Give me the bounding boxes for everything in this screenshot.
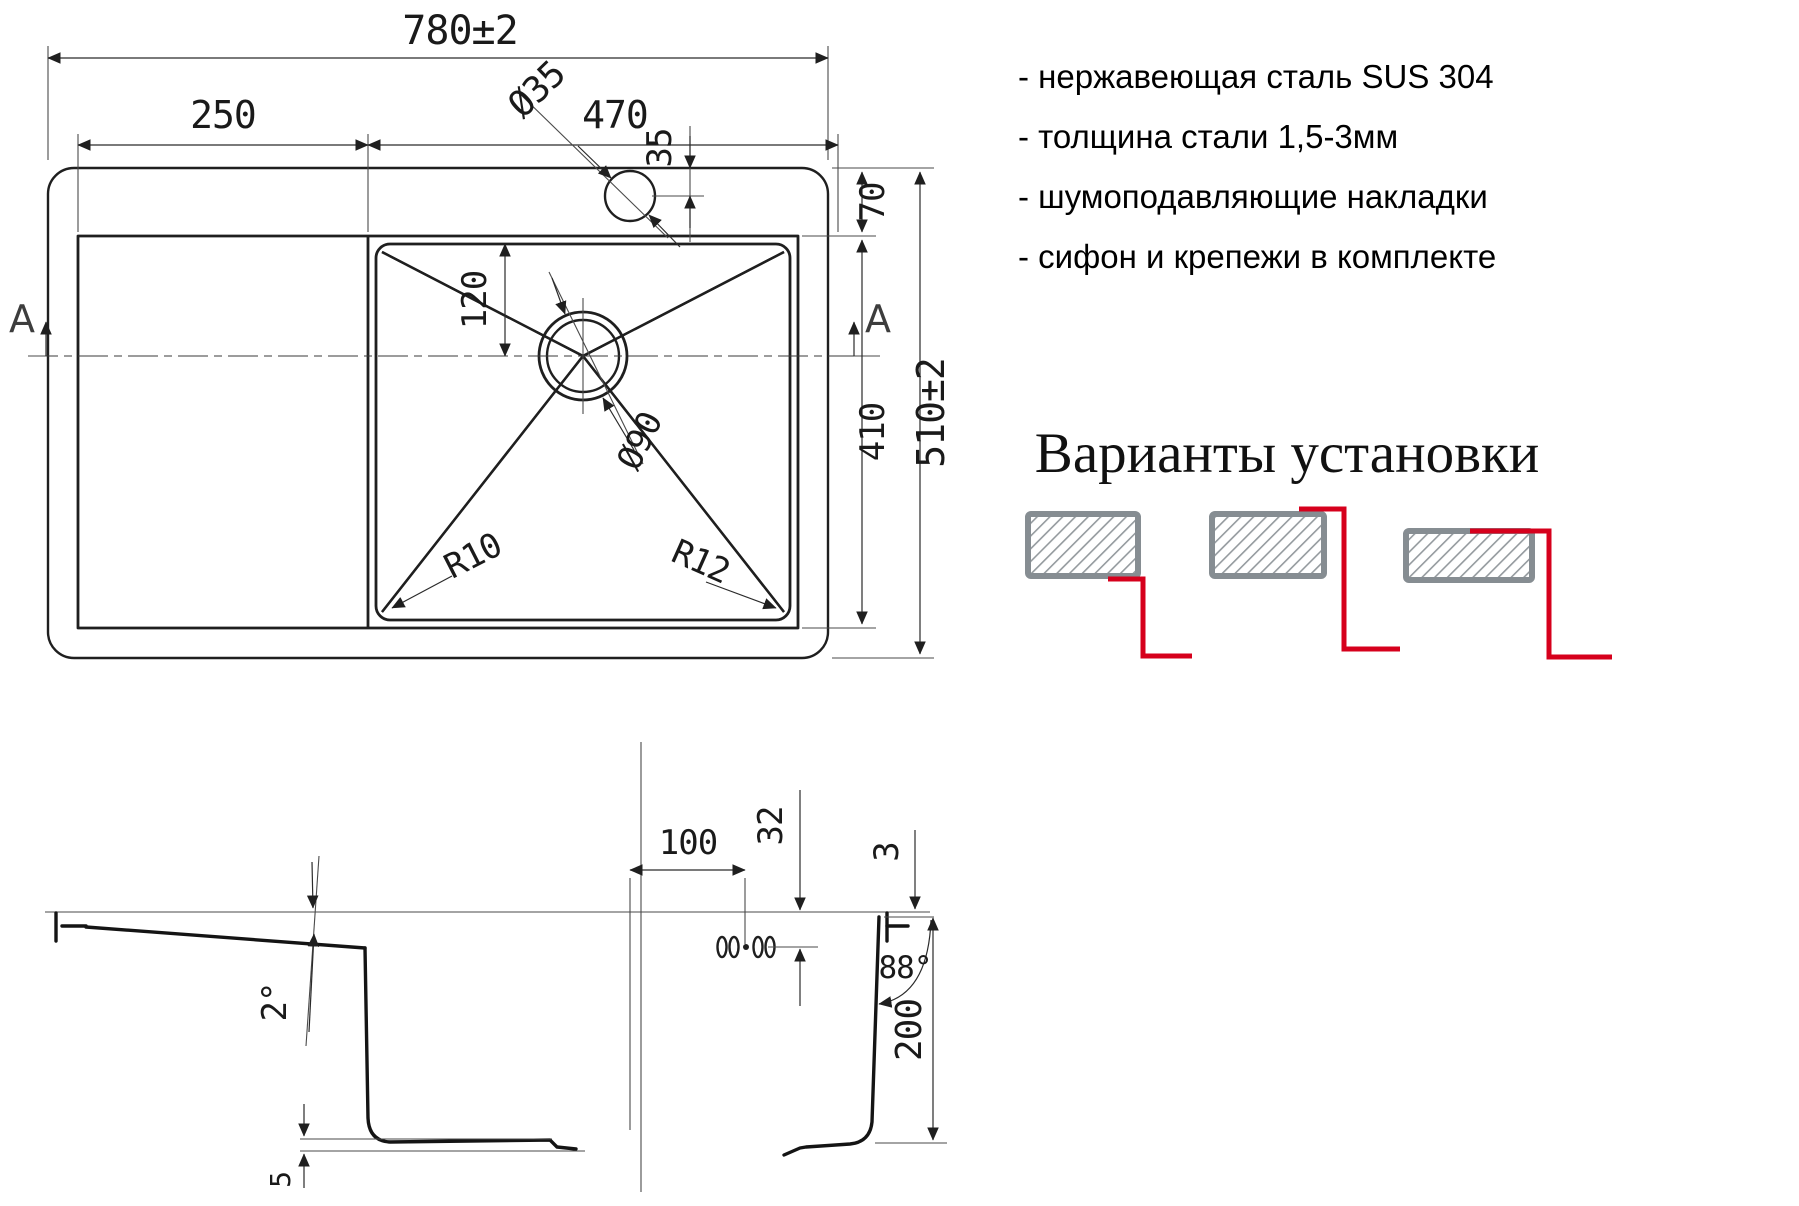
spec-item-thickness: - толщина стали 1,5-3мм xyxy=(1018,118,1398,155)
section-marker-left: A xyxy=(9,297,46,356)
install-options: Варианты установки xyxy=(1028,422,1612,657)
dim-wall-angle: 88° xyxy=(879,950,932,986)
section-extension-lines xyxy=(300,878,947,1151)
dim-overall-width: 780±2 xyxy=(402,8,517,54)
countertop-icon xyxy=(1028,514,1138,576)
dim-corner-radius-right: R12 xyxy=(666,532,736,592)
spec-item-pads: - шумоподавляющие накладки xyxy=(1018,178,1488,215)
section-label-left: A xyxy=(9,297,35,341)
section-label-right: A xyxy=(865,297,891,341)
sink-edge-line-overmount xyxy=(1108,579,1192,656)
spec-item-siphon: - сифон и крепежи в комплекте xyxy=(1018,238,1496,275)
section-view: 100 32 3 2° 88° 200 5 xyxy=(45,742,947,1192)
faucet-hole xyxy=(605,171,655,221)
spec-item-material: - нержавеющая сталь SUS 304 xyxy=(1018,58,1494,95)
dim-bottom-clearance: 5 xyxy=(264,1172,297,1188)
rim-height-dim: 3 xyxy=(867,830,915,909)
dim-rim-height: 3 xyxy=(867,842,907,861)
dim-holes-offset: 100 xyxy=(659,823,717,863)
dim-drain-diameter: Ø90 xyxy=(609,406,671,476)
overflow-holes xyxy=(718,937,775,957)
dim-bowl-width: 470 xyxy=(582,93,648,137)
bowl-left-profile xyxy=(365,948,576,1149)
corner-radius-right: R12 xyxy=(666,532,776,608)
dim-bowl-length: 410 xyxy=(853,403,893,461)
dim-faucet-diameter: Ø35 xyxy=(500,53,573,126)
install-title: Варианты установки xyxy=(1035,422,1539,485)
spec-list: - нержавеющая сталь SUS 304 - толщина ст… xyxy=(1018,58,1496,275)
corner-radius-left: R10 xyxy=(392,525,508,608)
dim-slope-angle: 2° xyxy=(255,983,295,1022)
faucet-offset-dim: 35 xyxy=(640,126,690,242)
dim-drainboard-width: 250 xyxy=(190,93,256,137)
dim-faucet-offset: 35 xyxy=(640,129,680,168)
bottom-clearance-dim: 5 xyxy=(264,1104,304,1188)
plan-view: A A 780±2 250 470 xyxy=(9,8,953,658)
slope-angle-dim: 2° xyxy=(255,856,319,1046)
drawing-canvas: A A 780±2 250 470 xyxy=(0,0,1799,1206)
install-variant-overmount xyxy=(1028,514,1192,656)
dim-rim-offset: 70 xyxy=(853,183,893,222)
dim-drain-offset: 120 xyxy=(455,271,495,329)
bowl-right-profile xyxy=(784,917,879,1155)
install-variant-flush xyxy=(1212,509,1400,649)
countertop-icon xyxy=(1212,514,1324,576)
drainboard-slope xyxy=(86,927,365,948)
dim-bowl-depth: 200 xyxy=(889,999,930,1061)
dim-overall-depth: 510±2 xyxy=(909,358,953,467)
left-rim-lip xyxy=(56,913,86,941)
countertop-icon xyxy=(1406,531,1532,580)
install-variant-undermount xyxy=(1406,531,1612,657)
dim-holes-depth: 32 xyxy=(751,807,791,846)
section-marker-right: A xyxy=(854,297,891,356)
sink-technical-drawing: A A 780±2 250 470 xyxy=(0,0,1799,1206)
holes-depth-dim: 32 xyxy=(751,790,800,1006)
